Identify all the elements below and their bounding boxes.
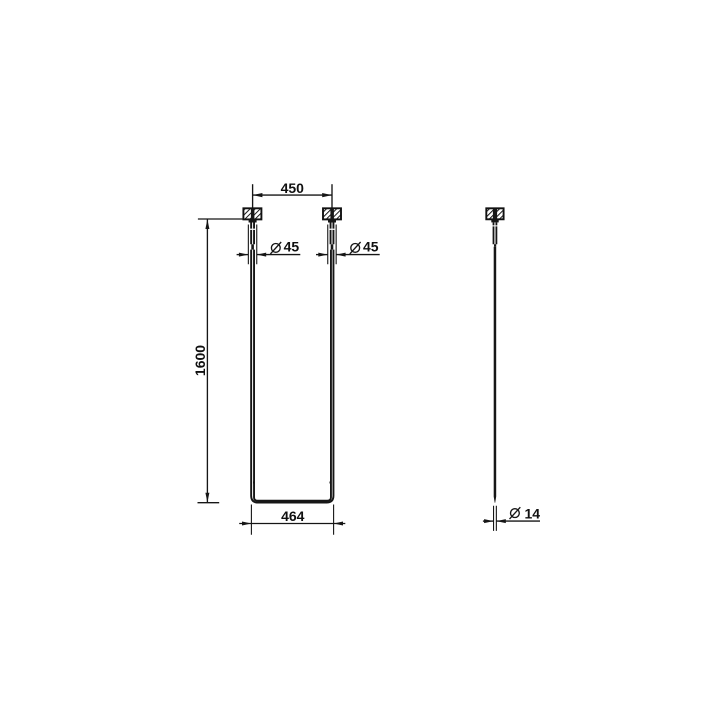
- svg-text:1600: 1600: [192, 345, 208, 376]
- svg-text:14: 14: [525, 505, 541, 521]
- svg-text:450: 450: [281, 180, 305, 196]
- svg-text:45: 45: [284, 239, 300, 255]
- svg-text:45: 45: [363, 239, 379, 255]
- svg-text:464: 464: [281, 508, 305, 524]
